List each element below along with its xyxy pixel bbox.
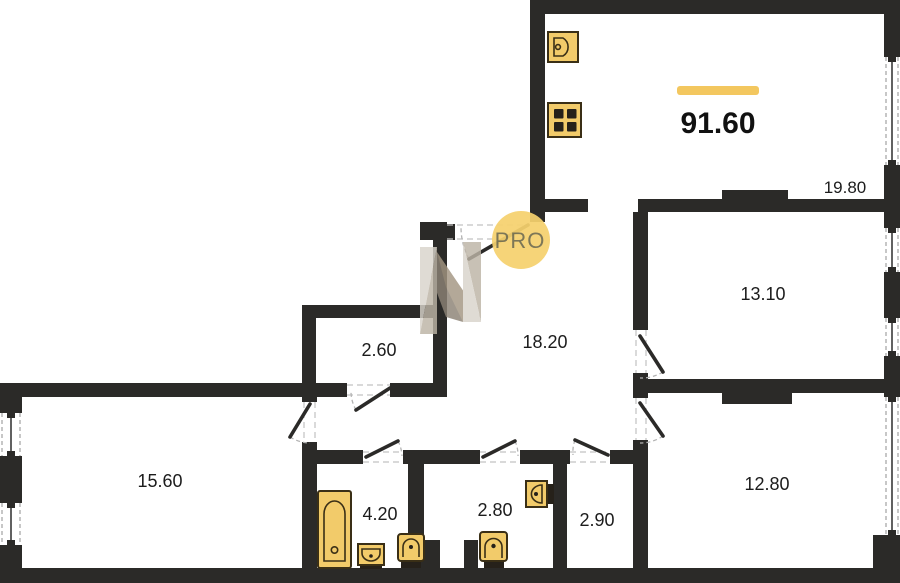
window-icon (884, 228, 900, 272)
window-icon (884, 397, 900, 535)
toilet-icon (480, 532, 507, 568)
door-icon (363, 441, 403, 462)
total-area-accent-line (677, 86, 759, 95)
wall-sink-icon (526, 481, 554, 507)
room-label-bedroom-right: 13.10 (740, 284, 785, 304)
door-icon (480, 441, 520, 462)
door-icon (570, 440, 610, 462)
floor-plan: 91.60 19.80 13.10 18.20 2.60 15.60 4.20 … (0, 0, 900, 583)
room-label-hallway: 18.20 (522, 332, 567, 352)
toilet-icon (398, 534, 424, 568)
room-label-closet: 2.60 (361, 340, 396, 360)
window-icon (884, 57, 900, 165)
bathtub-icon (318, 491, 351, 568)
room-label-wc: 2.80 (477, 500, 512, 520)
stove-icon (548, 103, 581, 137)
bath-sink-icon (358, 544, 384, 569)
door-icon (636, 398, 663, 443)
room-label-bedroom-left: 15.60 (137, 471, 182, 491)
door-icon (290, 402, 315, 443)
logo-icon (420, 242, 481, 334)
room-label-kitchen-living: 19.80 (824, 178, 867, 197)
room-labels: 91.60 19.80 13.10 18.20 2.60 15.60 4.20 … (137, 86, 866, 530)
watermark-label: PRO (495, 228, 546, 253)
floor-plan-page: 91.60 19.80 13.10 18.20 2.60 15.60 4.20 … (0, 0, 900, 583)
total-area-label: 91.60 (680, 107, 755, 140)
kitchen-sink-icon (548, 32, 578, 62)
window-icon (0, 503, 22, 545)
room-label-storage: 2.90 (579, 510, 614, 530)
door-icon (347, 385, 390, 410)
window-icon (884, 318, 900, 356)
room-label-bathroom: 4.20 (362, 504, 397, 524)
window-icon (0, 413, 22, 456)
room-label-bedroom-bottom: 12.80 (744, 474, 789, 494)
door-icon (636, 330, 663, 378)
